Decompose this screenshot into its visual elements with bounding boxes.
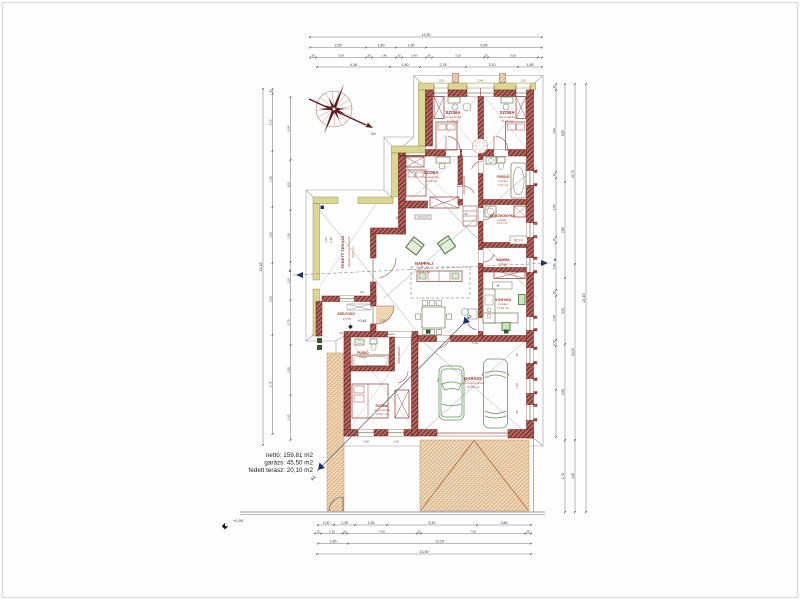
- svg-text:2,75: 2,75: [552, 340, 556, 346]
- svg-text:5,40: 5,40: [472, 341, 478, 345]
- svg-text:35: 35: [367, 53, 371, 57]
- svg-text:45,50 m2: 45,50 m2: [467, 385, 479, 389]
- svg-text:25: 25: [343, 529, 347, 533]
- svg-text:3,90: 3,90: [561, 308, 565, 314]
- svg-text:10,80 m2: 10,80 m2: [497, 306, 509, 310]
- svg-text:1,80: 1,80: [402, 63, 409, 67]
- svg-text:3,10: 3,10: [455, 53, 461, 57]
- svg-text:35: 35: [427, 53, 431, 57]
- svg-text:35: 35: [397, 53, 401, 57]
- svg-text:5,93: 5,93: [268, 296, 272, 302]
- svg-text:garázs: 45,50 m2: garázs: 45,50 m2: [264, 460, 313, 467]
- svg-text:15: 15: [316, 529, 320, 533]
- svg-text:2,85: 2,85: [561, 227, 565, 233]
- svg-text:1,50: 1,50: [438, 79, 444, 83]
- svg-text:1,45: 1,45: [381, 53, 387, 57]
- svg-text:1,80: 1,80: [378, 43, 385, 47]
- svg-text:FÜRDŐ: FÜRDŐ: [357, 350, 369, 355]
- svg-text:2,40: 2,40: [478, 79, 484, 83]
- svg-text:4,30: 4,30: [571, 473, 575, 479]
- svg-text:90: 90: [360, 290, 364, 294]
- svg-text:KÖZLEKEDŐ: KÖZLEKEDŐ: [461, 175, 466, 194]
- svg-text:3,85: 3,85: [501, 521, 508, 525]
- svg-text:2,35: 2,35: [286, 278, 290, 284]
- svg-text:23,15: 23,15: [582, 294, 586, 303]
- svg-text:1,90: 1,90: [368, 521, 375, 525]
- svg-text:10,75: 10,75: [571, 170, 575, 178]
- svg-text:12,00 m2: 12,00 m2: [501, 119, 513, 123]
- svg-text:6,20 m2: 6,20 m2: [497, 221, 508, 225]
- svg-text:4,90: 4,90: [552, 128, 556, 134]
- svg-text:1,85: 1,85: [527, 63, 534, 67]
- svg-text:1,80: 1,80: [408, 43, 415, 47]
- svg-text:35: 35: [552, 85, 556, 89]
- svg-text:+0,00: +0,00: [233, 518, 244, 523]
- svg-text:2,98: 2,98: [329, 237, 333, 243]
- svg-text:1,45: 1,45: [411, 53, 417, 57]
- svg-text:90: 90: [515, 410, 519, 414]
- svg-text:12,00 m2: 12,00 m2: [447, 119, 459, 123]
- svg-text:4,38: 4,38: [350, 63, 357, 67]
- svg-text:35: 35: [268, 90, 272, 94]
- svg-text:2,95: 2,95: [286, 233, 290, 239]
- svg-text:1,40: 1,40: [515, 383, 519, 389]
- svg-text:fedett terasz: 20,10 m2: fedett terasz: 20,10 m2: [249, 467, 314, 474]
- svg-text:2,60: 2,60: [286, 414, 290, 420]
- svg-text:Dél: Dél: [371, 132, 376, 136]
- svg-text:13,90: 13,90: [420, 550, 429, 554]
- svg-text:7,00: 7,00: [470, 529, 476, 533]
- svg-text:nettó: 159,81 m2: nettó: 159,81 m2: [266, 452, 314, 459]
- svg-text:90: 90: [464, 212, 468, 216]
- svg-text:1,00: 1,00: [323, 521, 330, 525]
- svg-text:greslap: greslap: [343, 317, 352, 321]
- svg-text:4,50: 4,50: [561, 389, 565, 395]
- svg-text:20,10 m2: 20,10 m2: [351, 246, 355, 258]
- svg-text:3,00: 3,00: [510, 53, 516, 57]
- svg-text:3,05: 3,05: [286, 182, 290, 188]
- svg-text:2,10: 2,10: [380, 319, 386, 323]
- svg-text:1,50: 1,50: [363, 440, 369, 444]
- svg-text:90: 90: [428, 339, 432, 343]
- svg-text:1,00: 1,00: [324, 237, 328, 243]
- svg-text:1,50: 1,50: [393, 440, 399, 444]
- svg-text:25: 25: [526, 529, 530, 533]
- svg-text:2,80: 2,80: [552, 263, 556, 269]
- svg-text:12,25: 12,25: [435, 539, 444, 543]
- svg-text:10: 10: [552, 173, 556, 177]
- svg-text:2,60: 2,60: [552, 315, 556, 321]
- svg-text:12,20 m2: 12,20 m2: [425, 179, 437, 183]
- svg-text:5,85: 5,85: [561, 130, 565, 136]
- svg-text:3,10: 3,10: [489, 63, 496, 67]
- svg-text:5,75: 5,75: [268, 381, 272, 387]
- svg-text:30: 30: [395, 216, 399, 220]
- svg-text:3,50: 3,50: [552, 204, 556, 210]
- svg-text:2,78: 2,78: [440, 63, 447, 67]
- svg-text:62 l.V: 62 l.V: [514, 239, 523, 243]
- svg-text:25: 25: [417, 529, 421, 533]
- svg-text:3,05: 3,05: [268, 232, 272, 238]
- svg-text:23,15: 23,15: [259, 263, 263, 272]
- svg-text:3,35: 3,35: [268, 176, 272, 182]
- svg-text:6,95: 6,95: [481, 43, 488, 47]
- svg-text:1,65: 1,65: [330, 539, 337, 543]
- svg-text:4,10: 4,10: [268, 119, 272, 125]
- svg-text:25: 25: [484, 53, 488, 57]
- svg-text:13,90: 13,90: [422, 33, 431, 37]
- svg-text:35: 35: [311, 53, 315, 57]
- svg-text:15: 15: [552, 238, 556, 242]
- svg-text:14,00 m2: 14,00 m2: [376, 412, 388, 416]
- svg-text:4,80: 4,80: [286, 125, 290, 131]
- svg-text:10,45: 10,45: [571, 348, 575, 356]
- svg-text:2,70: 2,70: [286, 319, 290, 325]
- svg-text:1,35: 1,35: [341, 521, 348, 525]
- svg-text:15: 15: [552, 291, 556, 295]
- svg-text:A: A: [289, 268, 292, 273]
- svg-text:1,70: 1,70: [561, 473, 565, 479]
- svg-text:90: 90: [339, 331, 343, 335]
- svg-text:1,50: 1,50: [520, 79, 526, 83]
- svg-text:SZÉLFOGÓ: SZÉLFOGÓ: [337, 311, 355, 316]
- svg-text:7,90 m2: 7,90 m2: [498, 183, 509, 187]
- svg-text:3,00: 3,00: [338, 53, 344, 57]
- svg-text:3,35: 3,35: [335, 43, 342, 47]
- svg-text:FEDETT TERASZ: FEDETT TERASZ: [340, 235, 345, 268]
- svg-text:4,30: 4,30: [379, 529, 385, 533]
- svg-text:5,40: 5,40: [429, 521, 436, 525]
- svg-text:+0,45: +0,45: [358, 319, 367, 323]
- svg-text:2,95: 2,95: [286, 367, 290, 373]
- svg-text:KÖZLEKEDŐ: KÖZLEKEDŐ: [396, 346, 401, 364]
- svg-text:1,30: 1,30: [329, 529, 335, 533]
- svg-text:90: 90: [515, 353, 519, 357]
